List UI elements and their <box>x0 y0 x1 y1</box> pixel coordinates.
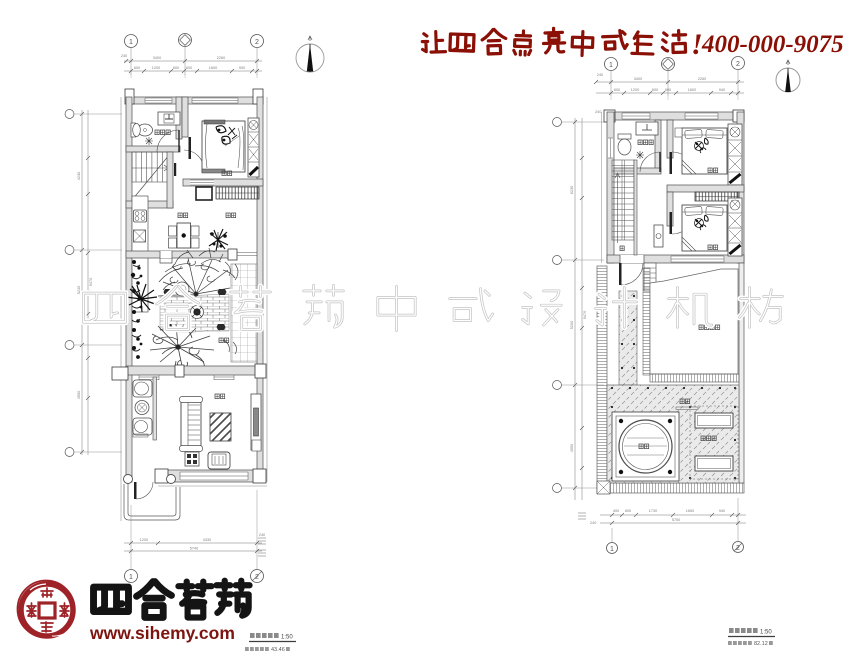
svg-text:2: 2 <box>255 39 259 46</box>
svg-text:3400: 3400 <box>153 56 161 60</box>
svg-text:600: 600 <box>665 88 671 92</box>
svg-text:9470: 9470 <box>89 278 93 286</box>
svg-text:1200: 1200 <box>140 538 148 542</box>
svg-text:5740: 5740 <box>190 547 198 551</box>
svg-text:1600: 1600 <box>209 66 217 70</box>
svg-text:600: 600 <box>625 509 631 513</box>
svg-text:4330: 4330 <box>203 538 211 542</box>
svg-text:940: 940 <box>719 88 725 92</box>
svg-text:600: 600 <box>134 66 140 70</box>
svg-text:4550: 4550 <box>570 444 574 452</box>
svg-text:2260: 2260 <box>698 77 706 81</box>
svg-text:1600: 1600 <box>688 88 696 92</box>
svg-text:1:50: 1:50 <box>281 635 293 641</box>
svg-text:1: 1 <box>610 546 614 553</box>
svg-text:400: 400 <box>613 509 619 513</box>
svg-text:240: 240 <box>597 73 603 77</box>
svg-text:1650: 1650 <box>686 509 694 513</box>
svg-text:600: 600 <box>614 88 620 92</box>
svg-text:240: 240 <box>590 521 596 525</box>
svg-text:400-000-9075: 400-000-9075 <box>701 31 844 58</box>
svg-text:4230: 4230 <box>77 172 81 180</box>
svg-text:43.46: 43.46 <box>271 647 285 653</box>
svg-text:1200: 1200 <box>152 66 160 70</box>
svg-text:2260: 2260 <box>217 56 225 60</box>
svg-text:240: 240 <box>595 110 601 114</box>
svg-text:600: 600 <box>173 66 179 70</box>
svg-text:1: 1 <box>129 39 133 46</box>
svg-text:1: 1 <box>609 62 613 69</box>
svg-text:2: 2 <box>736 61 740 68</box>
svg-text:1: 1 <box>129 574 133 581</box>
svg-text:!: ! <box>691 28 703 61</box>
svg-text:www.sihemy.com: www.sihemy.com <box>89 623 235 643</box>
svg-text:3400: 3400 <box>634 77 642 81</box>
svg-text:940: 940 <box>719 509 725 513</box>
svg-text:600: 600 <box>186 66 192 70</box>
svg-text:240: 240 <box>259 533 265 537</box>
svg-text:5750: 5750 <box>672 518 680 522</box>
svg-text:82.12: 82.12 <box>754 641 768 647</box>
svg-text:1:50: 1:50 <box>760 630 772 636</box>
svg-text:1200: 1200 <box>631 88 639 92</box>
svg-text:4550: 4550 <box>77 391 81 399</box>
svg-text:6230: 6230 <box>570 186 574 194</box>
svg-text:1730: 1730 <box>649 509 657 513</box>
svg-text:900: 900 <box>239 66 245 70</box>
svg-text:5240: 5240 <box>77 286 81 294</box>
svg-text:240: 240 <box>121 54 127 58</box>
svg-text:9470: 9470 <box>583 311 587 319</box>
svg-text:600: 600 <box>652 88 658 92</box>
svg-text:5200: 5200 <box>570 321 574 329</box>
